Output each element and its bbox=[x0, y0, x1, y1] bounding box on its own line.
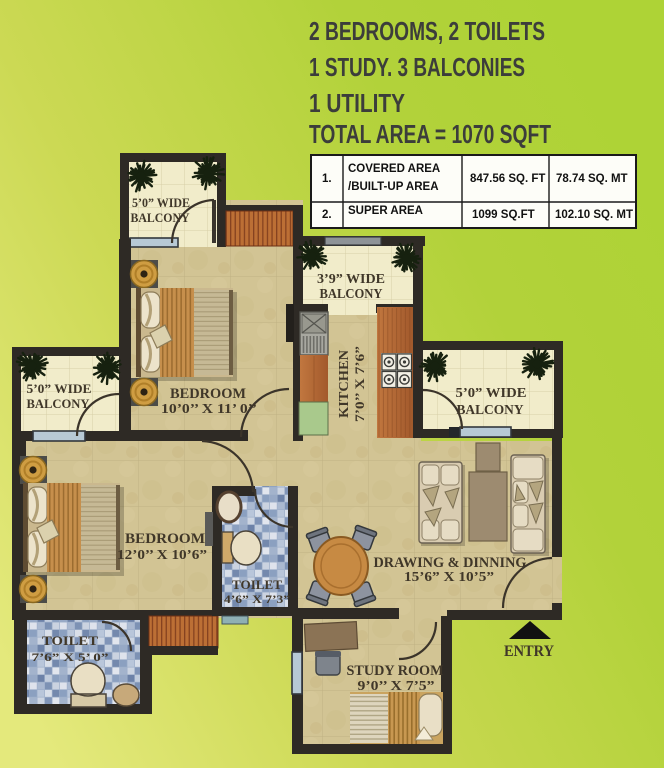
svg-text:1.: 1. bbox=[322, 173, 332, 185]
svg-text:BALCONY: BALCONY bbox=[457, 403, 524, 418]
svg-text:2 BEDROOMS, 2 TOILETS: 2 BEDROOMS, 2 TOILETS bbox=[309, 16, 545, 46]
svg-text:STUDY ROOM: STUDY ROOM bbox=[347, 663, 444, 679]
svg-text:TOILET: TOILET bbox=[232, 577, 282, 592]
svg-text:5’0” WIDE: 5’0” WIDE bbox=[27, 381, 92, 396]
svg-text:SUPER AREA: SUPER AREA bbox=[348, 205, 423, 217]
svg-text:5’0” WIDE: 5’0” WIDE bbox=[132, 196, 190, 210]
svg-text:1 UTILITY: 1 UTILITY bbox=[309, 88, 405, 118]
svg-text:ENTRY: ENTRY bbox=[504, 643, 554, 660]
svg-text:1099 SQ.FT: 1099 SQ.FT bbox=[472, 209, 535, 221]
svg-text:TOTAL AREA = 1070 SQFT: TOTAL AREA = 1070 SQFT bbox=[309, 119, 551, 149]
svg-text:BEDROOM: BEDROOM bbox=[170, 386, 246, 402]
svg-text:12’0’’ X 10’6”: 12’0’’ X 10’6” bbox=[117, 547, 207, 562]
svg-text:1 STUDY. 3 BALCONIES: 1 STUDY. 3 BALCONIES bbox=[309, 52, 525, 82]
svg-text:/BUILT-UP AREA: /BUILT-UP AREA bbox=[348, 181, 439, 193]
svg-text:10’0’’ X 11’ 0’’: 10’0’’ X 11’ 0’’ bbox=[161, 401, 257, 416]
svg-text:COVERED AREA: COVERED AREA bbox=[348, 163, 440, 175]
svg-text:15’6” X 10’5”: 15’6” X 10’5” bbox=[404, 569, 494, 584]
svg-text:BALCONY: BALCONY bbox=[27, 396, 91, 411]
svg-text:KITCHEN: KITCHEN bbox=[337, 350, 352, 418]
svg-text:BALCONY: BALCONY bbox=[320, 287, 383, 302]
svg-text:9’0’’ X 7’5”: 9’0’’ X 7’5” bbox=[358, 678, 435, 693]
svg-text:102.10 SQ. MT: 102.10 SQ. MT bbox=[555, 209, 633, 221]
svg-text:847.56 SQ. FT: 847.56 SQ. FT bbox=[470, 173, 545, 185]
svg-text:78.74 SQ. MT: 78.74 SQ. MT bbox=[556, 173, 628, 185]
svg-text:7’6” X 5’ 0”: 7’6” X 5’ 0” bbox=[32, 650, 109, 664]
svg-text:7’0’’ X 7’6”: 7’0’’ X 7’6” bbox=[353, 346, 367, 422]
svg-text:3’9” WIDE: 3’9” WIDE bbox=[317, 272, 385, 287]
svg-text:5’0” WIDE: 5’0” WIDE bbox=[456, 386, 527, 401]
svg-text:BALCONY: BALCONY bbox=[131, 211, 190, 225]
svg-text:2.: 2. bbox=[322, 209, 332, 221]
svg-text:TOILET: TOILET bbox=[42, 633, 98, 648]
svg-text:BEDROOM: BEDROOM bbox=[125, 531, 205, 547]
svg-text:4’6” X 7’3”: 4’6” X 7’3” bbox=[224, 592, 290, 606]
